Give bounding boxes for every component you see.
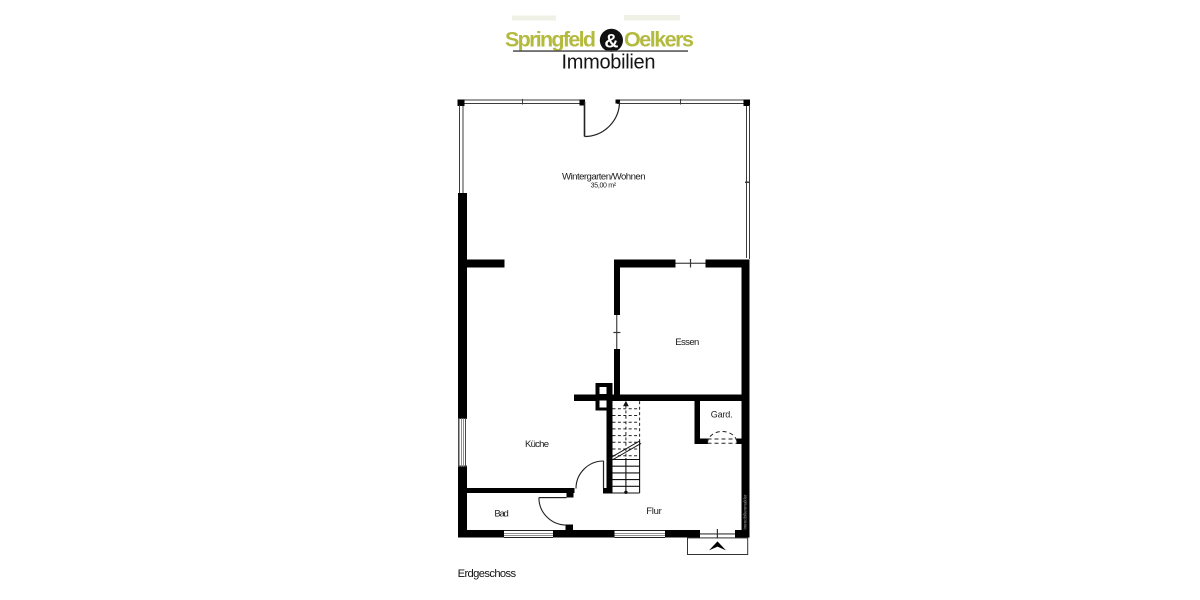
- svg-text:Wintergarten/Wohnen: Wintergarten/Wohnen: [562, 171, 646, 182]
- svg-text:Bad: Bad: [494, 509, 509, 520]
- svg-text:Flur: Flur: [646, 506, 662, 517]
- svg-text:Springfeld: Springfeld: [505, 28, 596, 52]
- svg-text:Küche: Küche: [525, 439, 549, 450]
- svg-text:35,00 m²: 35,00 m²: [591, 183, 617, 190]
- svg-text:Immobilien: Immobilien: [562, 52, 656, 74]
- svg-text:Essen: Essen: [675, 337, 699, 348]
- svg-text:Erdgeschoss: Erdgeschoss: [458, 568, 517, 580]
- svg-text:Oelkers: Oelkers: [624, 28, 694, 52]
- svg-text:Immobilienmakler: Immobilienmakler: [743, 494, 748, 530]
- svg-text:&: &: [604, 30, 618, 52]
- svg-text:Gard.: Gard.: [711, 410, 733, 420]
